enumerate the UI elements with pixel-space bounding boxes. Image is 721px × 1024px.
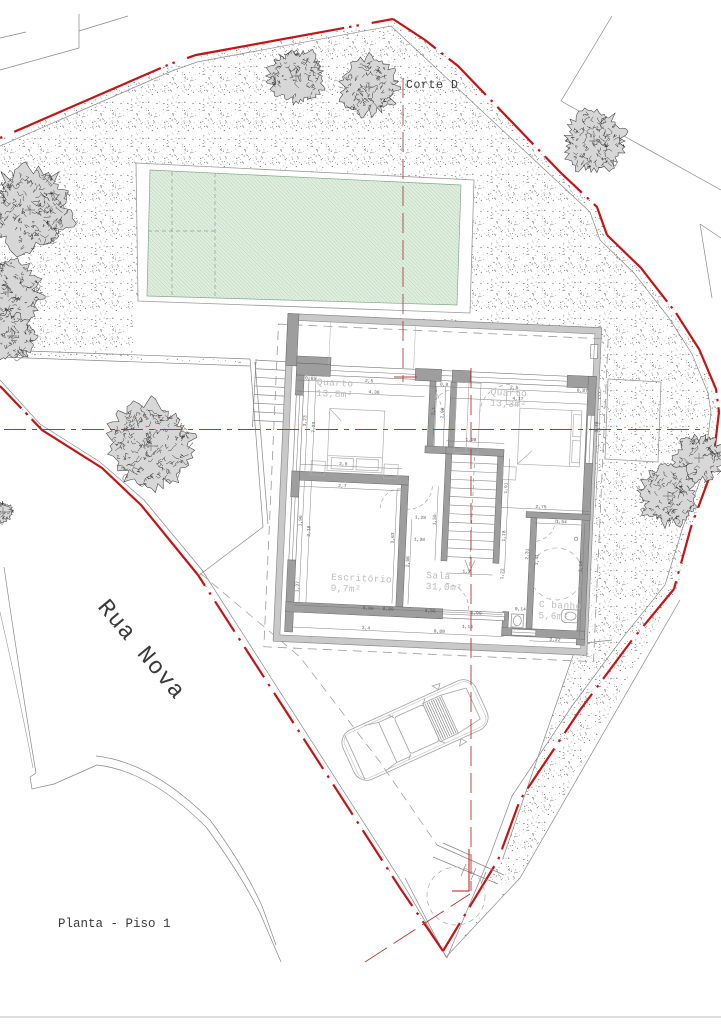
svg-text:3,63: 3,63 [390, 532, 397, 544]
svg-text:0,65: 0,65 [305, 375, 317, 382]
svg-text:3,18: 3,18 [306, 525, 313, 537]
svg-text:2,08: 2,08 [439, 407, 446, 419]
svg-text:0,14: 0,14 [515, 606, 527, 613]
svg-text:2,22: 2,22 [549, 637, 561, 644]
svg-text:1,55: 1,55 [432, 514, 439, 526]
svg-text:0,8: 0,8 [440, 381, 449, 387]
svg-text:2,5: 2,5 [365, 378, 374, 384]
svg-text:3,1: 3,1 [431, 407, 437, 416]
svg-text:3,19: 3,19 [578, 561, 585, 573]
svg-text:1,37: 1,37 [294, 581, 301, 593]
svg-text:1,2: 1,2 [462, 569, 471, 575]
svg-text:1,96: 1,96 [297, 515, 304, 527]
svg-text:31,0m²: 31,0m² [426, 581, 463, 594]
svg-text:0,68: 0,68 [363, 605, 375, 612]
svg-text:1,22: 1,22 [499, 568, 506, 580]
svg-text:0,87: 0,87 [577, 388, 589, 395]
svg-text:Rua Nova: Rua Nova [91, 595, 190, 706]
svg-text:2,31: 2,31 [524, 548, 531, 560]
svg-text:1,28: 1,28 [415, 514, 427, 521]
svg-text:1,54: 1,54 [556, 519, 568, 526]
svg-text:5,6m²: 5,6m² [538, 610, 569, 622]
svg-text:4,36: 4,36 [368, 389, 380, 396]
svg-text:Planta - Piso 1: Planta - Piso 1 [58, 917, 171, 931]
svg-text:2,41: 2,41 [534, 554, 541, 566]
svg-text:2,75: 2,75 [535, 504, 547, 511]
svg-text:2,8: 2,8 [339, 461, 348, 467]
svg-text:3,78: 3,78 [594, 421, 601, 433]
svg-text:1,38: 1,38 [414, 536, 426, 543]
svg-text:3,56: 3,56 [425, 608, 437, 615]
svg-text:1,99: 1,99 [470, 610, 482, 617]
svg-text:13,3m²: 13,3m² [490, 398, 527, 411]
svg-text:1,14: 1,14 [462, 624, 474, 631]
svg-text:1,18: 1,18 [501, 530, 508, 542]
svg-text:3,4: 3,4 [362, 625, 371, 631]
svg-text:9,7m²: 9,7m² [330, 583, 361, 595]
svg-text:0,89: 0,89 [383, 606, 395, 613]
svg-text:Corte D: Corte D [406, 79, 459, 92]
svg-text:13,8m²: 13,8m² [316, 388, 353, 401]
svg-text:1,91: 1,91 [503, 482, 510, 494]
svg-text:3,23: 3,23 [302, 415, 309, 427]
svg-text:2,7: 2,7 [338, 483, 347, 489]
svg-text:2,56: 2,56 [405, 556, 412, 568]
svg-text:0,89: 0,89 [434, 628, 446, 635]
svg-text:7,23: 7,23 [311, 421, 318, 433]
